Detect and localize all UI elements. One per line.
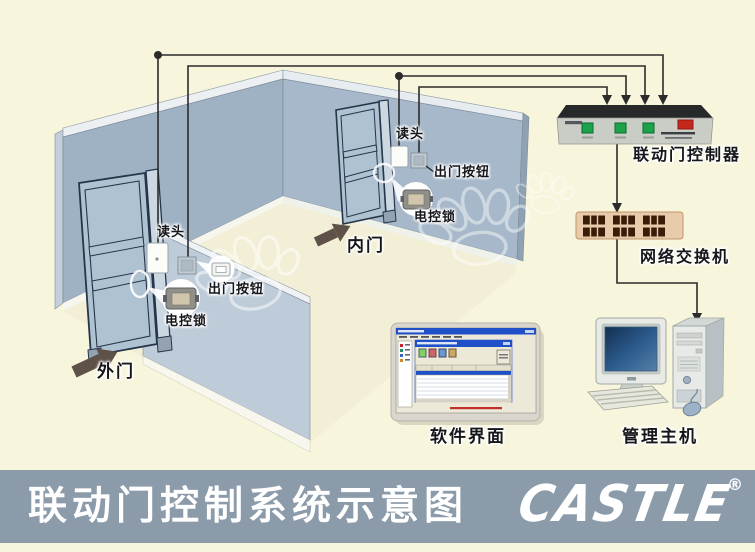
registered-trademark-icon: ® — [727, 475, 743, 494]
brand-logo: CASTLE ® — [514, 479, 725, 534]
pc-tower — [673, 318, 724, 408]
diagram-canvas: 读头 出门按钮 电控锁 外门 读头 出门按钮 电控锁 内门 联动门控制器 网络交… — [0, 0, 755, 552]
network-switch-label: 网络交换机 — [640, 249, 730, 265]
app-status-text — [450, 407, 502, 409]
inner-electric-lock — [401, 190, 434, 209]
wire-junction-dot — [395, 72, 403, 80]
app-column-header — [416, 365, 511, 371]
software-ui-label: 软件界面 — [430, 429, 506, 446]
outer-electric-lock — [163, 288, 199, 309]
software-screenshot — [391, 323, 544, 425]
pc-monitor — [596, 318, 666, 399]
inner-door — [336, 100, 396, 224]
diagram-title: 联动门控制系统示意图 — [28, 470, 468, 543]
inner-reader-label: 读头 — [396, 128, 424, 141]
inner-card-reader — [391, 146, 408, 167]
management-host — [588, 318, 724, 418]
controller-brand-text — [565, 121, 582, 124]
wire-junction-dot — [154, 51, 162, 59]
outer-exit-button-label: 出门按钮 — [208, 283, 264, 296]
controller-label: 联动门控制器 — [633, 147, 741, 163]
schematic-scene — [0, 0, 755, 470]
brand-logo-text: CASTLE — [514, 475, 735, 534]
app-scrollbar — [508, 375, 511, 399]
inner-door-label: 内门 — [347, 238, 385, 255]
inner-lock-label: 电控锁 — [414, 211, 456, 224]
door-controller — [557, 105, 713, 144]
outer-lock-label: 电控锁 — [165, 315, 207, 328]
network-switch — [576, 212, 683, 239]
management-host-label: 管理主机 — [622, 429, 698, 446]
outer-door-label: 外门 — [97, 364, 135, 381]
footer-bar: 联动门控制系统示意图 CASTLE ® — [0, 470, 755, 543]
controller-power-switch — [678, 120, 693, 129]
outer-reader-label: 读头 — [157, 226, 185, 239]
inner-exit-button-label: 出门按钮 — [434, 166, 490, 179]
pc-keyboard — [588, 386, 668, 410]
